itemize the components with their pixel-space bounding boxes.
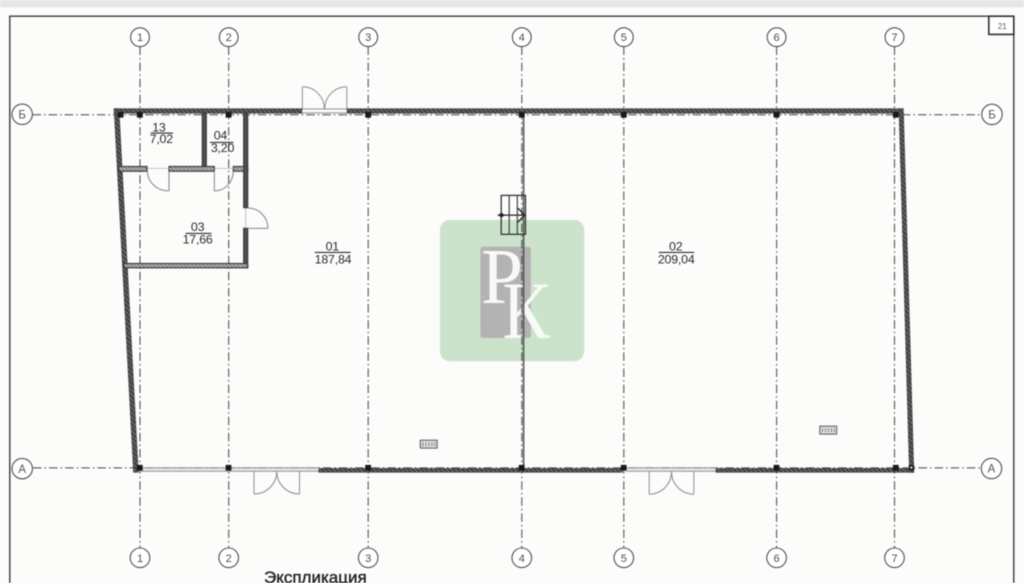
svg-text:К: К: [503, 265, 550, 356]
svg-text:5: 5: [621, 553, 627, 565]
svg-text:17,66: 17,66: [183, 233, 213, 247]
svg-text:3: 3: [365, 553, 371, 565]
svg-text:2: 2: [226, 553, 232, 565]
svg-text:209,04: 209,04: [658, 253, 695, 267]
svg-text:187,84: 187,84: [315, 253, 352, 267]
svg-text:А: А: [18, 464, 26, 476]
svg-text:Б: Б: [18, 110, 26, 122]
svg-text:4: 4: [519, 553, 525, 565]
svg-text:1: 1: [137, 32, 143, 44]
svg-text:Экспликация: Экспликация: [264, 568, 367, 583]
svg-text:7: 7: [891, 553, 897, 565]
svg-text:Б: Б: [988, 110, 996, 122]
svg-text:21: 21: [998, 22, 1007, 31]
svg-text:3: 3: [365, 32, 371, 44]
svg-text:2: 2: [226, 32, 232, 44]
svg-text:01: 01: [326, 240, 340, 254]
svg-text:А: А: [988, 464, 996, 476]
svg-text:5: 5: [621, 32, 627, 44]
svg-text:02: 02: [669, 240, 683, 254]
svg-text:1: 1: [137, 553, 143, 565]
svg-text:6: 6: [774, 553, 780, 565]
svg-text:7,02: 7,02: [150, 132, 174, 146]
svg-text:7: 7: [891, 32, 897, 44]
svg-text:6: 6: [774, 32, 780, 44]
svg-text:4: 4: [519, 32, 525, 44]
